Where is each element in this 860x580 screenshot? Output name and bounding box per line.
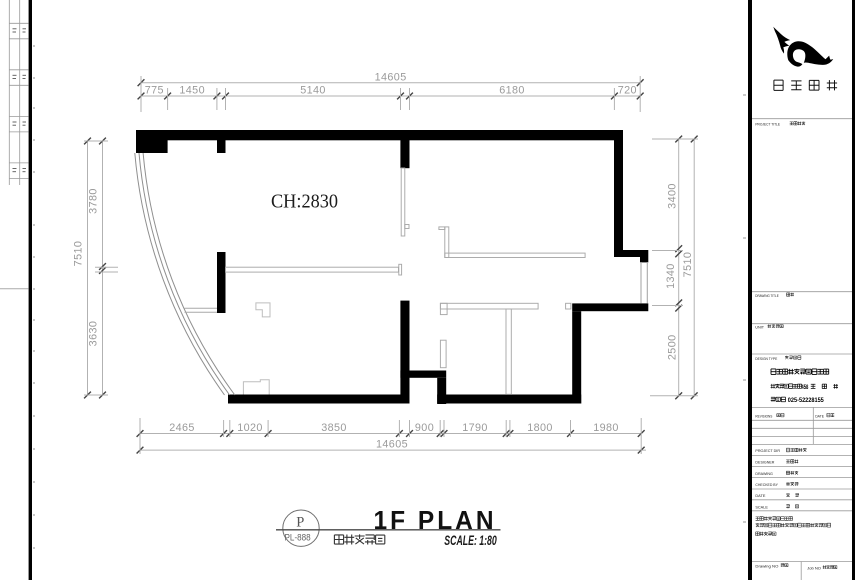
svg-text:DATE: DATE [755, 493, 765, 498]
svg-text:PL-888: PL-888 [285, 533, 311, 544]
svg-text:1020: 1020 [237, 422, 263, 434]
svg-text:CHECKED BY: CHECKED BY [755, 482, 778, 487]
svg-text:DESIGNER: DESIGNER [755, 459, 774, 464]
svg-text:3850: 3850 [321, 422, 347, 434]
svg-text:UNIT: UNIT [755, 324, 764, 329]
svg-text:458: 458 [801, 384, 808, 391]
svg-text:CH:2830: CH:2830 [271, 192, 338, 213]
svg-text:14605: 14605 [376, 439, 408, 451]
svg-text:DRAWING TITLE: DRAWING TITLE [755, 293, 779, 298]
svg-text:1800: 1800 [527, 422, 553, 434]
svg-text:7510: 7510 [682, 252, 694, 278]
svg-text:2500: 2500 [666, 334, 678, 360]
svg-text:1980: 1980 [593, 422, 619, 434]
svg-text:900: 900 [415, 422, 434, 434]
svg-text:720: 720 [618, 85, 637, 97]
svg-text:5140: 5140 [300, 85, 326, 97]
svg-text:Job NO: Job NO [807, 565, 821, 570]
svg-text:SCALE: 1:80: SCALE: 1:80 [444, 532, 497, 548]
svg-text:6180: 6180 [499, 85, 525, 97]
svg-text:2465: 2465 [169, 422, 195, 434]
svg-text:P: P [296, 515, 304, 531]
svg-text:3400: 3400 [666, 183, 678, 209]
svg-text:PROJECT DIR: PROJECT DIR [755, 448, 780, 453]
svg-text:1340: 1340 [665, 263, 677, 289]
svg-text:SCALE: SCALE [755, 504, 768, 509]
svg-text:775: 775 [145, 85, 164, 97]
svg-text:PROJECT TITLE: PROJECT TITLE [755, 122, 780, 127]
svg-text:1790: 1790 [462, 422, 488, 434]
svg-text:DATE: DATE [815, 413, 824, 418]
svg-text:Drawing NO: Drawing NO [755, 563, 778, 568]
svg-text:DESIGN TYPE: DESIGN TYPE [755, 356, 777, 361]
svg-text:1F PLAN: 1F PLAN [374, 505, 497, 535]
svg-text:DRAWING: DRAWING [755, 471, 773, 476]
svg-text:1450: 1450 [179, 85, 205, 97]
svg-text:3780: 3780 [88, 188, 100, 214]
svg-text:025-52228155: 025-52228155 [788, 397, 824, 404]
svg-text:14605: 14605 [375, 71, 407, 83]
svg-text:7510: 7510 [73, 241, 85, 267]
svg-text:3630: 3630 [88, 321, 100, 347]
svg-text:REVISIONS: REVISIONS [755, 413, 772, 418]
